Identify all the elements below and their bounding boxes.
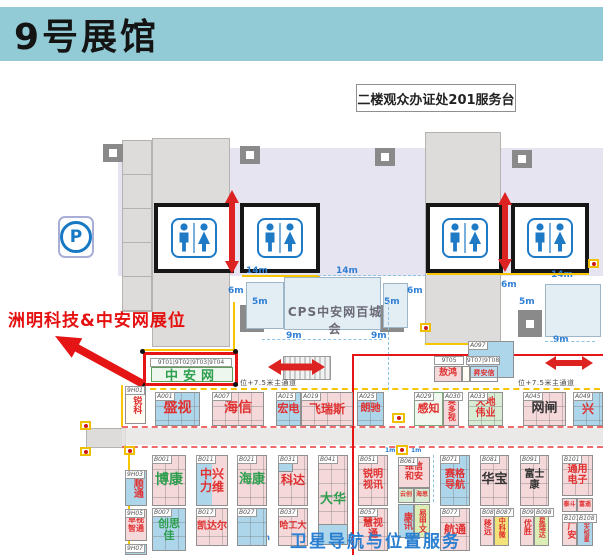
- zone-label-satellite: 卫星导航与位置服务: [290, 527, 461, 552]
- booth-yunchuang[interactable]: 云创: [398, 488, 414, 503]
- horizontal-double-arrow: [545, 356, 593, 370]
- aisle-label: 位+7.5米主通道: [518, 380, 575, 387]
- pillar-icon: [512, 150, 532, 168]
- exhibition-hall-floor-plan: 9号展馆 二楼观众办证处201服务台 P CPS中安网百城会 14m 14m 6…: [0, 0, 603, 555]
- restroom-icon: [240, 203, 320, 273]
- dim-label: 1m: [411, 448, 421, 454]
- fire-lane-dashed-line: [122, 446, 603, 448]
- booth-B027[interactable]: B027: [237, 508, 267, 546]
- pillar-icon: [103, 144, 123, 162]
- dim-label: 6m: [228, 287, 244, 296]
- booth-B106-fuyao[interactable]: 富遥: [577, 498, 593, 512]
- dim-label: 5m: [252, 298, 268, 307]
- dim-label: 6m: [407, 287, 423, 296]
- booth-A001-shengshi[interactable]: A001盛视: [155, 392, 200, 426]
- annotation-arrow: [55, 336, 145, 388]
- annotation-text: 洲明科技&中安网展位: [8, 306, 186, 331]
- booth-B061-weixinhean[interactable]: B061维信和安: [398, 457, 430, 488]
- booth-A015-hongdian[interactable]: A015宏电: [276, 392, 301, 426]
- stair-block: [86, 428, 126, 448]
- pillar-icon: [518, 310, 542, 337]
- fire-point-icon: [396, 445, 408, 455]
- booth-A019-feiruisi[interactable]: A019飞瑞斯: [301, 392, 353, 426]
- booth-B097-yousheng[interactable]: B097优胜: [520, 508, 534, 546]
- cps-booth-space: [545, 284, 601, 337]
- booth-id-9T05: 9T05: [434, 356, 464, 365]
- restroom-icon: [511, 203, 589, 273]
- highlighted-booth-zhonganwang[interactable]: 9T01|9T02|9T03|9T04 中安网: [143, 352, 238, 386]
- booth-B091-fushikang[interactable]: B091富士康: [520, 455, 549, 506]
- aisle-label: 位+7.5米主通道: [240, 380, 297, 387]
- booth-name-zhonganwang: 中安网: [151, 367, 233, 382]
- boundary-line: [427, 273, 589, 275]
- booth-B081-huabao[interactable]: B081华宝: [480, 455, 509, 506]
- pillar-icon: [240, 146, 260, 164]
- booth-A029-ganzhi[interactable]: A029感知: [414, 392, 443, 426]
- boundary-line: [121, 385, 123, 427]
- boundary-line: [233, 302, 235, 350]
- corner-dot: [140, 349, 145, 354]
- booth-9H07[interactable]: 9H07: [125, 544, 147, 555]
- booth-B087-zhongkewei[interactable]: B087中科微: [494, 508, 509, 546]
- fire-point-icon: [588, 259, 599, 268]
- fire-point-icon: [420, 323, 431, 332]
- wall-strip: [122, 140, 152, 312]
- service-desk-label: 二楼观众办证处201服务台: [356, 84, 516, 112]
- guide-dashed-line: [433, 455, 434, 502]
- booth-9T05-aohong[interactable]: 敖鸿: [434, 366, 462, 382]
- booth-B107-guangan[interactable]: B107广安: [562, 514, 577, 546]
- booth-A049-xing[interactable]: A049兴: [573, 392, 603, 426]
- booth-B021-haikang[interactable]: B021海康: [237, 455, 267, 506]
- booth-B101-tongyongdianzi[interactable]: B101通用电子: [562, 455, 593, 496]
- main-aisle-band: [122, 428, 603, 445]
- fire-lane-dashed-line: [122, 426, 603, 428]
- pillar-icon: [375, 148, 395, 166]
- restroom-icon: [154, 203, 234, 273]
- booth-A025-langchi[interactable]: A025朗驰: [357, 392, 384, 426]
- booth-A007-haixin[interactable]: A007海信: [212, 392, 264, 426]
- escalator: [283, 356, 331, 380]
- guide-dashed-line: [262, 339, 382, 340]
- service-desk-text: 二楼观众办证处201服务台: [357, 89, 514, 108]
- fire-point-icon: [80, 447, 91, 456]
- fire-point-icon: [392, 413, 405, 423]
- booth-A045-wangzha[interactable]: A045网闸: [523, 392, 566, 426]
- booth-A030-aoduoshi[interactable]: A030奥多视: [443, 392, 459, 426]
- booth-B017-kaidaer[interactable]: B017凯达尔: [196, 508, 228, 546]
- header-banner: 9号展馆: [0, 7, 603, 61]
- page-title: 9号展馆: [0, 8, 159, 60]
- booth-B011-zhongxingliwei[interactable]: B011中兴力维: [196, 455, 228, 506]
- fire-point-icon: [80, 421, 91, 430]
- booth-9H01-ruike[interactable]: 9H01锐科: [125, 386, 146, 424]
- corner-dot: [233, 349, 238, 354]
- booth-B098-xingruida[interactable]: B098星瑞达: [534, 508, 549, 546]
- booth-B001-bokang[interactable]: B001博康: [152, 455, 186, 506]
- booth-B086-yiyuan[interactable]: B086移远: [480, 508, 494, 546]
- zone-divider-line: [352, 354, 354, 555]
- booth-id-9T07-9T08: 9T07|9T08: [466, 356, 500, 365]
- restroom-icon: [426, 203, 503, 273]
- booth-B051-ruimingshixun[interactable]: B051锐明视讯: [358, 455, 388, 506]
- aisle-dashed-line: [130, 388, 600, 390]
- dim-label: 6m: [501, 281, 517, 290]
- booth-B007-chuangsijia[interactable]: B007创思佳: [152, 508, 186, 551]
- guide-dashed-line: [545, 341, 595, 342]
- dim-label: 5m: [519, 298, 535, 307]
- parking-icon: P: [58, 216, 94, 258]
- booth-cell[interactable]: [462, 366, 470, 382]
- corner-dot: [233, 382, 238, 387]
- booth-9H05-zhuoshizhitong[interactable]: 9H05卓视智通: [125, 509, 147, 541]
- boundary-line: [242, 275, 320, 277]
- fire-point-icon: [124, 446, 135, 455]
- booth-9T07-shenganxin[interactable]: 昇安信: [470, 366, 498, 382]
- guide-dashed-line: [388, 302, 389, 390]
- booth-B071-saigedaohang[interactable]: B071赛格导航: [440, 455, 470, 506]
- booth-B108-hangtianhengxing[interactable]: B108航天恒星: [577, 514, 593, 546]
- guide-dashed-line: [318, 275, 426, 276]
- booth-B105-taidou[interactable]: 泰斗: [562, 498, 577, 512]
- booth-9H03-shuntong[interactable]: 9H03顺通: [125, 470, 147, 506]
- booth-B031-keda[interactable]: B031 科达: [278, 455, 308, 506]
- boundary-line: [143, 349, 235, 351]
- booth-A033-tiandiweiye[interactable]: A033天地伟业: [468, 392, 503, 426]
- dim-label: 1m: [385, 448, 395, 454]
- booth-haisi[interactable]: 海思: [414, 488, 430, 503]
- dim-label: 5m: [384, 298, 400, 307]
